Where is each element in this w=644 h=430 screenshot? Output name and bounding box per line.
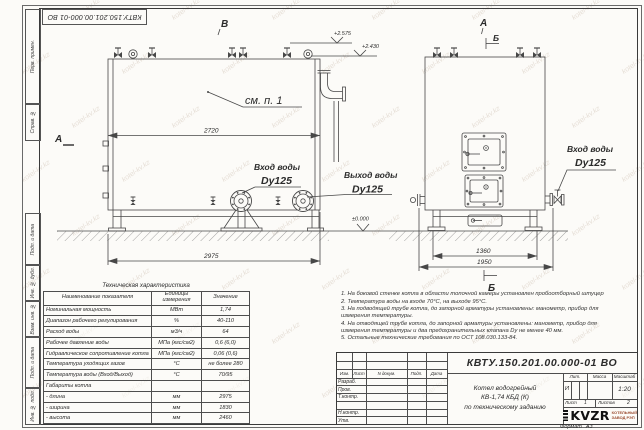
lit-value: И xyxy=(563,386,571,392)
rev-header-podp: Подп. xyxy=(407,371,426,376)
spec-header-name: Наименование показателя xyxy=(44,291,152,305)
spec-cell: 70/95 xyxy=(202,370,250,381)
company-name: КОТЕЛЬНЫЙ ЗАВОД РЭП xyxy=(612,411,637,421)
water-outlet-flange xyxy=(293,191,314,212)
title-block: Изм. Лист N докум. Подп. Дата Разраб. Пр… xyxy=(336,352,638,425)
lit-header: Лит. xyxy=(563,374,587,379)
side-drain-stub xyxy=(410,194,425,206)
section-marker-a-side: А xyxy=(54,134,62,145)
note-item: 2. Температура воды на входе 70°С, на вы… xyxy=(341,299,625,306)
sig-prov: Пров. xyxy=(338,387,366,393)
spec-cell: Габариты котла xyxy=(44,381,152,392)
spec-row: Расход водым3/ч64 xyxy=(44,327,250,338)
elevation-mid-label: +2.430 xyxy=(362,44,380,50)
drawing-title-line1: Котел водогрейный xyxy=(474,384,537,394)
spec-row: Температура воды (Вход/Выход)°С70/95 xyxy=(44,370,250,381)
spec-row: Температура уходящих газов°Сне более 280 xyxy=(44,359,250,370)
elevation-mark-icon xyxy=(354,50,366,56)
top-valve-icon xyxy=(228,48,236,58)
spec-row: - длинамм2975 xyxy=(44,391,250,402)
mass-header: Масса xyxy=(587,374,612,379)
sig-razrab: Разраб. xyxy=(338,379,366,385)
spec-row: - высотамм2460 xyxy=(44,413,250,424)
outlet-dn-label-side: Dy125 xyxy=(352,184,383,196)
rev-header-data: Дата xyxy=(426,371,447,376)
inlet-dn-label-side: Dy125 xyxy=(261,175,292,187)
sheets-label: Листов xyxy=(598,400,622,405)
elevation-zero-icon xyxy=(357,224,369,231)
spec-cell: 40-110 xyxy=(202,316,250,327)
top-valve-icon xyxy=(516,48,524,58)
spec-cell: м3/ч xyxy=(152,327,202,338)
spec-cell: Диапазон рабочего регулирования xyxy=(44,316,152,327)
spec-header-units: Единицы измерения xyxy=(152,291,202,305)
scale-value: 1:20 xyxy=(612,386,637,393)
drawing-title: Котел водогрейный КВ-1,74 КБД (К) по тех… xyxy=(447,373,563,425)
note-item: 4. На отводящей трубе котла, до запорной… xyxy=(341,321,625,335)
spec-table: Наименование показателя Единицы измерени… xyxy=(43,291,250,425)
spec-cell: - длина xyxy=(44,391,152,402)
boiler-body-front xyxy=(425,57,545,210)
inlet-label-side: Вход воды xyxy=(254,162,301,172)
spec-row: - ширинамм1830 xyxy=(44,402,250,413)
inlet-dn-label-front: Dy125 xyxy=(575,157,606,169)
ground-hatching xyxy=(57,231,568,241)
spec-cell: Рабочее давление воды xyxy=(44,337,152,348)
drain-valve-icon xyxy=(130,197,135,205)
rev-header-list: Лист xyxy=(352,371,366,376)
lower-furnace-door xyxy=(465,175,503,207)
sheet-value: 1 xyxy=(584,400,594,406)
dim-1950-label: 1950 xyxy=(477,259,492,266)
company-line: ЗАВОД РЭП xyxy=(612,416,637,421)
dim-2720-label: 2720 xyxy=(203,128,219,135)
top-valve-icon xyxy=(533,48,541,58)
format-label: Формат xyxy=(560,424,582,430)
drawing-title-line3: по техническому заданию xyxy=(464,403,545,413)
spec-cell: Температура воды (Вход/Выход) xyxy=(44,370,152,381)
support-frame-side xyxy=(109,210,324,231)
format-value: А3 xyxy=(586,424,593,430)
drawing-title-line2: КВ-1,74 КБД (К) xyxy=(481,393,529,403)
dim-2975-label: 2975 xyxy=(203,253,219,260)
sheet-label: Лист xyxy=(565,400,583,405)
note-item: 5. Остальные технические требования по О… xyxy=(341,335,625,342)
spec-cell: °С xyxy=(152,359,202,370)
rev-header-izm: Изм. xyxy=(337,371,352,376)
elevation-top-label: +2.575 xyxy=(334,31,352,37)
spec-cell: 0,6 (6,0) xyxy=(202,337,250,348)
safety-valve-elbow xyxy=(318,71,346,163)
spec-cell: - высота xyxy=(44,413,152,424)
spec-cell: 1,74 xyxy=(202,305,250,316)
spec-cell: 2975 xyxy=(202,391,250,402)
note-item: 1. На боковой стенке котла в области топ… xyxy=(341,291,625,298)
spec-cell: МПа (кгс/см2) xyxy=(152,337,202,348)
spec-cell: 2460 xyxy=(202,413,250,424)
upper-furnace-door xyxy=(462,133,506,171)
spec-cell xyxy=(202,381,250,392)
inlet-label-front: Вход воды xyxy=(567,144,614,154)
water-inlet-flange xyxy=(231,191,252,212)
manufacturer-logo: KVZR КОТЕЛЬНЫЙ ЗАВОД РЭП xyxy=(563,407,637,424)
spec-header-value: Значение xyxy=(202,291,250,305)
drain-valve-icon xyxy=(275,197,280,205)
scale-header: Масштаб xyxy=(612,374,637,379)
top-valve-icon xyxy=(239,48,247,58)
spec-cell: МВт xyxy=(152,305,202,316)
spec-cell: не более 280 xyxy=(202,359,250,370)
kvzr-logo-text: KVZR xyxy=(570,408,609,423)
technical-notes: 1. На боковой стенке котла в области топ… xyxy=(341,291,625,343)
support-frame-front xyxy=(428,210,542,231)
drawing-sheet: kotel-kv.kzkotel-kv.kzkotel-kv.kzkotel-k… xyxy=(0,0,644,430)
elevation-zero-label: ±0.000 xyxy=(352,217,370,223)
spec-row: Номинальная мощностьМВт1,74 xyxy=(44,305,250,316)
spec-row: Гидравлическое сопротивление котлаМПа (к… xyxy=(44,348,250,359)
spec-cell: 64 xyxy=(202,327,250,338)
spec-cell: Гидравлическое сопротивление котла xyxy=(44,348,152,359)
spec-row: Габариты котла xyxy=(44,381,250,392)
sig-utv: Утв. xyxy=(338,418,366,424)
inlet-valve-front xyxy=(545,190,564,206)
top-valve-icon xyxy=(433,48,441,58)
spec-cell: мм xyxy=(152,413,202,424)
spec-row: Диапазон рабочего регулирования%40-110 xyxy=(44,316,250,327)
section-marker-a-front: А xyxy=(479,18,487,29)
note-item: 3. На подводящей трубе котла, до запорно… xyxy=(341,306,625,320)
sig-nkontr: Н.контр. xyxy=(338,410,366,416)
inlet-leader-front xyxy=(558,170,616,191)
rev-header-dokum: N докум. xyxy=(366,371,407,376)
spec-cell: 1830 xyxy=(202,402,250,413)
detail-callout-label: см. п. 1 xyxy=(245,95,282,107)
spec-table-title: Техническая характеристика xyxy=(43,282,249,289)
elevation-mark-icon xyxy=(331,37,343,43)
top-valve-icon xyxy=(283,48,291,58)
dim-1360-label: 1360 xyxy=(476,248,491,255)
doc-number: КВТУ.150.201.00.000-01 ВО xyxy=(447,353,637,373)
spec-table-region: Техническая характеристика Наименование … xyxy=(43,282,249,424)
spec-cell xyxy=(152,381,202,392)
spec-cell: °С xyxy=(152,370,202,381)
sheets-value: 2 xyxy=(627,400,635,406)
spec-header-row: Наименование показателя Единицы измерени… xyxy=(44,291,250,305)
sig-tkontr: Т.контр. xyxy=(338,394,366,400)
top-valve-icon xyxy=(450,48,458,58)
section-marker-v: В xyxy=(221,19,228,30)
top-port-icon xyxy=(304,50,312,58)
spec-cell: Номинальная мощность xyxy=(44,305,152,316)
boiler-side-view xyxy=(103,48,346,231)
drain-valve-icon xyxy=(210,197,215,205)
spec-cell: - ширина xyxy=(44,402,152,413)
spec-row: Рабочее давление водыМПа (кгс/см2)0,6 (6… xyxy=(44,337,250,348)
spec-cell: % xyxy=(152,316,202,327)
spec-cell: мм xyxy=(152,391,202,402)
kvzr-logo-icon xyxy=(563,410,568,421)
outlet-label-side: Выход воды xyxy=(344,170,398,180)
top-valve-icon xyxy=(114,48,122,58)
spec-cell: Расход воды xyxy=(44,327,152,338)
section-marker-b-top: Б xyxy=(493,33,499,43)
spec-cell: 0,06 (0,6) xyxy=(202,348,250,359)
boiler-front-view xyxy=(410,48,564,231)
spec-cell: мм xyxy=(152,402,202,413)
format-note: ФорматА3 xyxy=(560,424,597,430)
spec-cell: МПа (кгс/см2) xyxy=(152,348,202,359)
top-valve-icon xyxy=(148,48,156,58)
spec-cell: Температура уходящих газов xyxy=(44,359,152,370)
top-port-icon xyxy=(129,50,137,58)
